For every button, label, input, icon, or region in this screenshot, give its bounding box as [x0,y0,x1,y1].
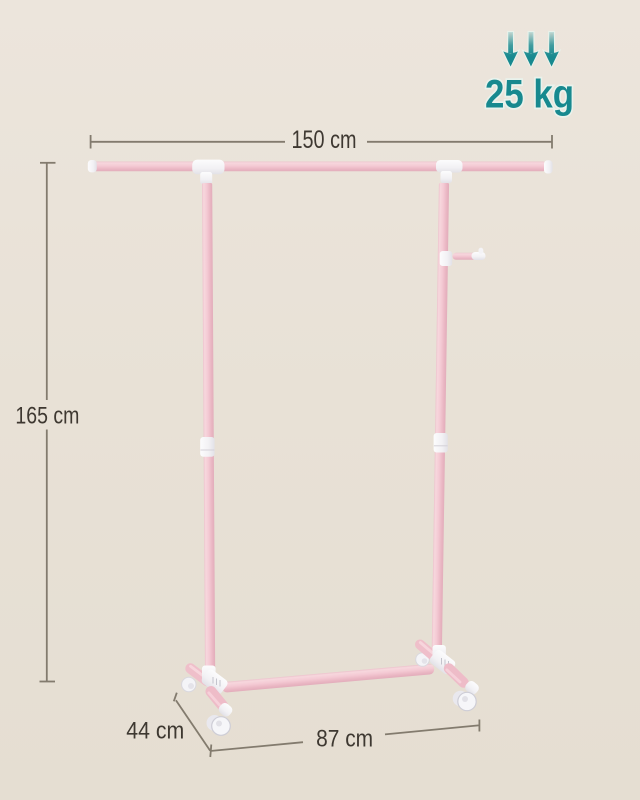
svg-text:150 cm: 150 cm [292,126,357,154]
svg-text:87 cm: 87 cm [316,726,373,753]
svg-text:44 cm: 44 cm [126,717,184,744]
svg-text:25 kg: 25 kg [485,73,574,117]
svg-text:165 cm: 165 cm [15,403,79,430]
